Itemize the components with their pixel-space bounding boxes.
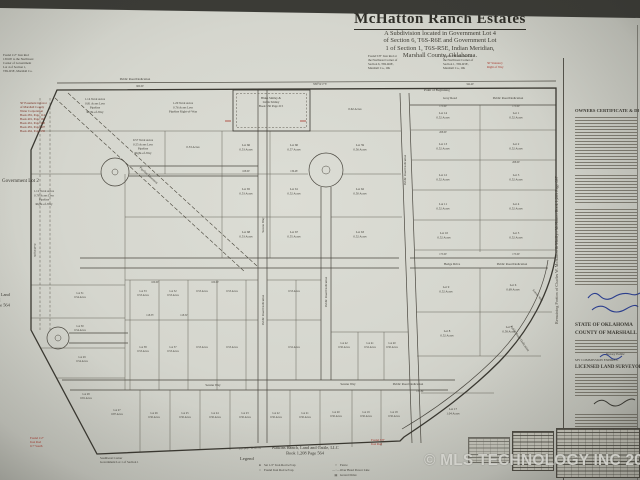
cul-de-sac-center	[112, 169, 118, 175]
road-label: Scenic Way	[532, 288, 545, 303]
road-label: Public Road Dedication	[324, 276, 328, 307]
legend-item-label: Over Head Power Line	[340, 468, 369, 472]
survey-note: Point of Beginning	[424, 88, 450, 92]
lot-label: 0.53 Acres	[226, 346, 238, 349]
road-label: Serene Way	[205, 383, 221, 387]
lot-label: Lot 29	[78, 356, 86, 359]
lot-label: 0.56 Acres	[353, 147, 367, 151]
survey-note: Book 536 Page 215	[259, 104, 284, 108]
certificate-paragraph	[575, 117, 637, 171]
lot-label: 0.52 Acres	[509, 206, 523, 210]
lot-label: Lot 18	[390, 411, 398, 414]
lot-label: 0.53 Acres	[239, 191, 253, 195]
lot-label: 0.53 Acres	[167, 350, 179, 353]
survey-note: Watkins Ranch, Land	[0, 292, 11, 298]
surveyor-signature	[594, 399, 635, 406]
pipeline-easement-line	[68, 93, 257, 266]
legend-item: ○Found Iron Rod w/Cap	[256, 468, 336, 473]
lot-label: Lot 20	[332, 411, 340, 414]
lot-label: Lot 23	[241, 412, 249, 415]
lot-label: Lot 26	[150, 412, 158, 415]
lot-label: 0.53 Acres	[196, 346, 208, 349]
road-label: Public Road Dedication	[261, 294, 265, 325]
dimension-label: 118.32'	[180, 314, 188, 317]
lot-label: 1.04 Acres	[446, 411, 460, 415]
lot-label: 0.50 Acres	[338, 346, 350, 349]
road-label: Serene Way	[261, 217, 265, 233]
pipeline-easement-line	[55, 98, 245, 272]
lot-label: 0.53 Acres	[137, 294, 149, 297]
legend-item-label: Set 1/2" Iron Rod w/Cap	[264, 463, 296, 467]
owners-certificate-heading: OWNERS CERTIFICATE & DEDICATION	[575, 108, 639, 113]
cul-de-sac	[47, 327, 69, 349]
road-label: Gray Road	[443, 96, 457, 100]
adjoining-owner-note: Remaining Portion of Charles W. McHatton…	[555, 115, 564, 385]
dimension-label: 108.00'	[242, 170, 250, 173]
dimension-label: 208.00'	[512, 161, 520, 164]
lot-label: 0.52 Acres	[509, 177, 523, 181]
lot-label: 0.50 Acres	[148, 416, 160, 419]
lot-label: 0.53 Acres	[226, 290, 238, 293]
lot-label: 0.50 Acres	[386, 346, 398, 349]
survey-note: Marshall Co., OK	[443, 66, 466, 71]
lot-label: 0.53 Acres	[167, 294, 179, 297]
survey-note: T6S-R5E, Marshall Co.	[3, 69, 33, 74]
lot-label: 0.50 Acres	[299, 416, 311, 419]
dimension-label: N0°05'43"W	[34, 243, 37, 257]
lot-label: 0.52 Acres	[437, 235, 451, 239]
lot-label: Lot 53	[139, 290, 147, 293]
lot-label: 0.81 Acres	[80, 397, 92, 400]
lot-label: 0.55 Acres	[287, 234, 301, 238]
lot-label: 0.52 Acres	[436, 115, 450, 119]
county-line: COUNTY OF MARSHALL	[575, 330, 637, 336]
dimension-label: 136.48'	[290, 170, 298, 173]
dimension-label: 175.00'	[439, 253, 447, 256]
lot-label: Lot 52	[169, 290, 177, 293]
lot-label: 0.50 Acres	[270, 416, 282, 419]
survey-note: Book 1,208 Page 564	[286, 450, 325, 456]
cul-de-sac	[309, 153, 343, 187]
legend-title: Legend	[240, 456, 254, 461]
survey-note: Book 462, Page 980	[20, 129, 46, 134]
plat-map: 1.14 Total Acres0.81 Acres LessPipelineR…	[0, 0, 640, 480]
certificate-paragraph	[575, 175, 637, 205]
lot-label: Lot 42	[340, 342, 348, 345]
lot-label: 0.52 Acres	[288, 346, 300, 349]
lot-label: 0.54 Acres	[74, 329, 86, 332]
survey-note: Right of Way	[487, 65, 504, 69]
lot-label: 0.52 Acres	[436, 177, 450, 181]
lot-label: Lot 31	[76, 292, 84, 295]
lot-label: 0.52 Acres	[287, 191, 301, 195]
lot-label: Pipeline Right-of-Way	[169, 110, 197, 114]
lot-label: 0.50 Acres	[360, 415, 372, 418]
legend-item-label: Gravel Drive	[340, 473, 357, 477]
lot-label: 0.52 Acres	[353, 234, 367, 238]
dimension-label: 118.35'	[146, 314, 154, 317]
lot-label: Right-of-Way	[35, 202, 53, 206]
lot-label: 0.50 Acres	[388, 415, 400, 418]
dimension-label: N89°54'17"E	[313, 83, 327, 86]
lot-label: 0.52 Acres	[509, 146, 523, 150]
owner-signature	[588, 293, 640, 299]
legend-column: ●Set 1/2" Iron Rod w/Cap○Found Iron Rod …	[256, 463, 336, 473]
lot-label: Lot 27	[113, 409, 121, 412]
dimension-label: S89°54'37"W 931.04'	[239, 447, 262, 451]
dimension-label: 342.40'	[466, 83, 474, 86]
lot-label: 0.54 Acres	[74, 296, 86, 299]
dimension-label: 131.84'	[416, 390, 424, 393]
dimension-label: 100.00'	[211, 281, 219, 284]
legend-item-label: Fence	[340, 463, 348, 467]
lot-label: Right-of-Way	[134, 151, 152, 155]
lot-label: 0.54 Acres	[76, 360, 88, 363]
survey-note: 0.7' South	[30, 444, 43, 448]
lot-label: 0.53 Acres	[186, 145, 200, 149]
lot-label: 0.52 Acres	[436, 206, 450, 210]
lot-label: Lot 38	[139, 346, 147, 349]
lot-label: 0.53 Acres	[196, 290, 208, 293]
lot-label: Lot 24	[211, 412, 219, 415]
lot-label: 0.52 Acres	[439, 289, 453, 293]
title-block: McHatton Ranch Estates A Subdivision loc…	[325, 10, 555, 60]
cul-de-sac-center	[55, 335, 61, 341]
dimension-label: 208.00'	[439, 131, 447, 134]
cul-de-sac	[101, 158, 129, 186]
lot-label: 0.50 Acres	[179, 416, 191, 419]
road-label: Pipeline Easement	[139, 166, 159, 185]
lot-label: 0.50 Acres	[353, 191, 367, 195]
lot-label: 0.57 Acres	[287, 147, 301, 151]
lot-label: 0.62 Acres	[348, 107, 362, 111]
lot-label: Lot 21	[301, 412, 309, 415]
lot-label: 0.52 Acres	[440, 333, 454, 337]
state-line: STATE OF OKLAHOMA	[575, 322, 633, 328]
lot-label: 0.50 Acres	[330, 415, 342, 418]
lot-label: Right-of-Way	[86, 110, 104, 114]
surveyor-address-lines	[575, 414, 637, 428]
survey-note: Iron Rod	[371, 442, 383, 446]
dimension-label: 175.00'	[439, 105, 447, 108]
road-label: Public Road Dedication	[497, 262, 528, 266]
lot-label: Lot 22	[272, 412, 280, 415]
lot-label: Lot 30	[76, 325, 84, 328]
subtitle-line: Marshall County, Oklahoma.	[325, 52, 555, 59]
road-edge-line	[57, 81, 556, 83]
lot-label: Lot 41	[366, 342, 374, 345]
plat-photo: 1.14 Total Acres0.81 Acres LessPipelineR…	[0, 0, 640, 480]
lot-label: 0.69 Acres	[506, 287, 520, 291]
road-label: Public Road Dedication	[403, 154, 407, 185]
lot-label: 0.50 Acres	[209, 416, 221, 419]
legend-symbol-icon: ▤	[332, 473, 340, 478]
subtitle-line: A Subdivision located in Government Lot …	[325, 30, 555, 37]
subtitle-line: of Section 6, T6S-R6E and Government Lot	[325, 37, 555, 44]
road-label: Serene Way	[340, 382, 356, 386]
dimension-label: 175.00'	[512, 253, 520, 256]
lot-label: Lot 40	[388, 342, 396, 345]
surveyor-paragraph	[575, 374, 637, 398]
lot-label: 0.52 Acres	[436, 146, 450, 150]
survey-note: Government Lot 2	[2, 179, 39, 184]
road-label: Public Road Dedication	[393, 382, 424, 386]
notary-public-label: Notary Public	[606, 352, 625, 356]
lot-label: Lot 19	[362, 411, 370, 414]
lot-label: 0.53 Acres	[239, 234, 253, 238]
dimension-label: 660.00'	[136, 85, 144, 88]
lot-label: 0.52 Acres	[509, 235, 523, 239]
subtitle-line: 1 of Section 1, T6S-R5E, Indian Meridian…	[325, 45, 555, 52]
road-label: Public Road Dedication	[120, 77, 151, 81]
commission-expires-label: MY COMMISSION EXPIRES:	[575, 358, 618, 362]
lot-label: 0.53 Acres	[239, 147, 253, 151]
owner-signature	[592, 305, 638, 312]
cul-de-sac-center	[322, 166, 330, 174]
lot-label: 0.87 Acres	[111, 413, 123, 416]
road-label: Public Road Dedication	[509, 325, 530, 353]
survey-note: Book 1,208 Page 564	[0, 303, 11, 309]
lot-label: 0.52 Acres	[364, 346, 376, 349]
dimension-label: 100.00'	[151, 281, 159, 284]
legend-item-label: Found Iron Rod w/Cap	[264, 468, 293, 472]
lot-label: Lot 28	[82, 393, 90, 396]
mls-watermark: © MLS TECHNOLOGY INC 2026	[424, 452, 640, 470]
lot-label: Lot 25	[181, 412, 189, 415]
lot-label: 0.53 Acres	[137, 350, 149, 353]
road-label: Hedge Drive	[444, 262, 461, 266]
lot-label: Lot 37	[169, 346, 177, 349]
lot-label: 0.53 Acres	[288, 290, 300, 293]
lot-label: 0.52 Acres	[509, 115, 523, 119]
dimension-label: 175.00'	[512, 105, 520, 108]
legend-symbol-icon: ○	[256, 468, 264, 473]
lot-label: 0.50 Acres	[239, 416, 251, 419]
road-label: Public Road Dedication	[493, 96, 524, 100]
survey-note: Marshall Co., OK	[368, 66, 391, 71]
survey-note: Government Lot 1 of Section 1	[100, 460, 139, 464]
surveyor-heading: LICENSED LAND SURVEYOR	[575, 365, 640, 370]
certificate-paragraph	[575, 209, 637, 287]
legend-item: ▤Gravel Drive	[332, 473, 412, 478]
legend-column: ×Fence—·—Over Head Power Line▤Gravel Dri…	[332, 463, 412, 479]
sheet-right-border	[637, 25, 638, 480]
